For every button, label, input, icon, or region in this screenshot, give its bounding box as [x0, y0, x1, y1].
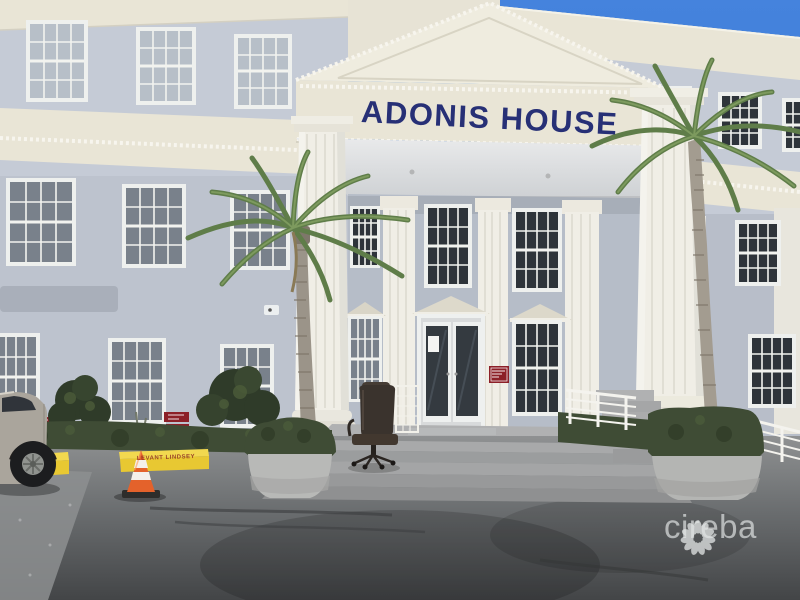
- window: [26, 20, 88, 102]
- door-notice-paper: [428, 336, 439, 352]
- window: [6, 178, 76, 266]
- portico-soffit: [296, 138, 664, 200]
- window: [424, 204, 472, 288]
- window: [512, 208, 562, 292]
- window: [136, 27, 196, 105]
- planter-left: [244, 417, 336, 498]
- listing-photo: ADONIS HOUSE LEVANT LINDSEY cireba: [0, 0, 800, 600]
- entrance-door[interactable]: [412, 296, 490, 428]
- window: [234, 34, 292, 109]
- planter-right: [648, 406, 764, 500]
- security-camera-icon: [264, 305, 279, 315]
- window: [782, 98, 800, 152]
- window: [748, 334, 796, 408]
- window: [108, 338, 166, 424]
- window: [735, 220, 781, 286]
- window: [122, 184, 186, 268]
- stucco-patch: [0, 286, 118, 312]
- scene: [0, 0, 800, 600]
- door-side-sign: [489, 366, 509, 383]
